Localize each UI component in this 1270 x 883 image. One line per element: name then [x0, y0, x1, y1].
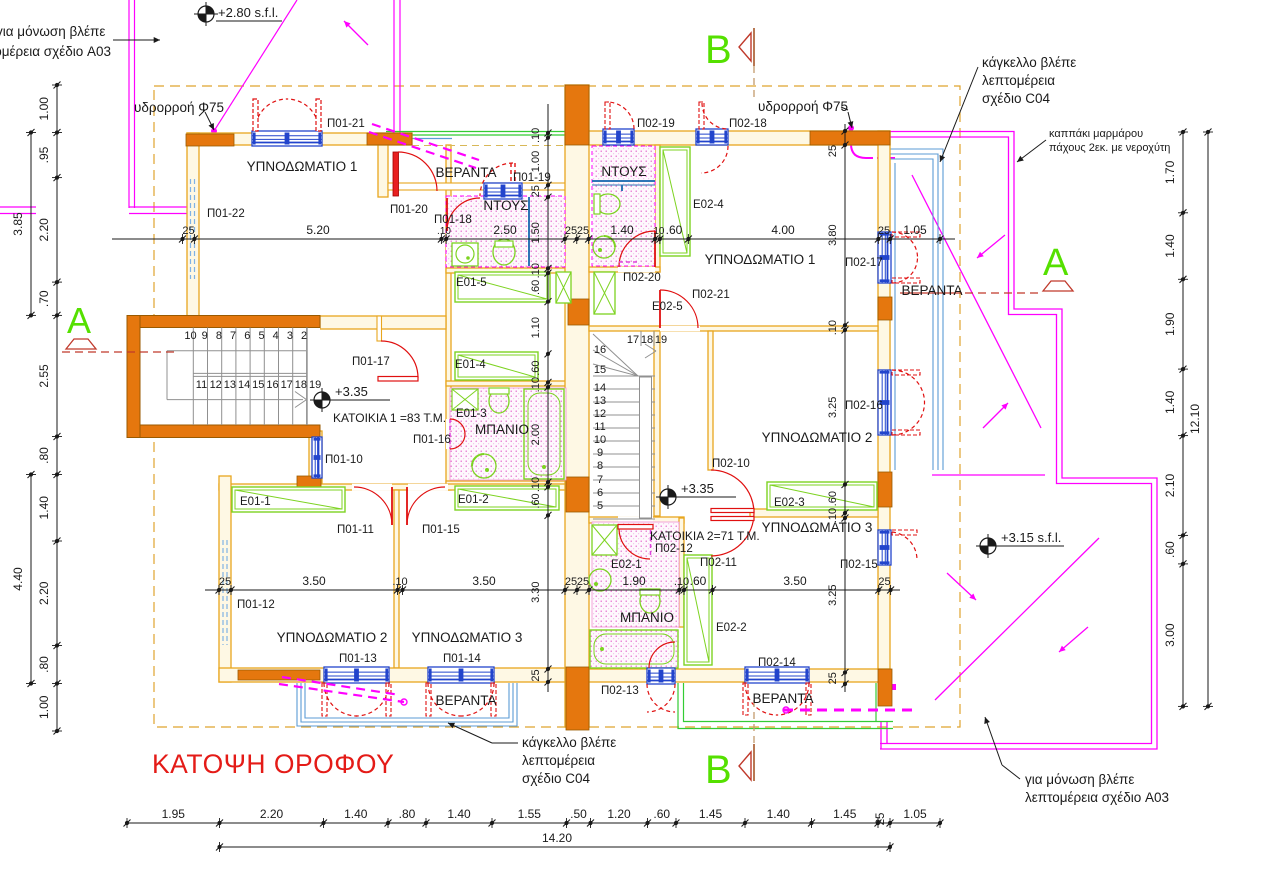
svg-text:16: 16 [266, 379, 278, 391]
svg-text:1.00: 1.00 [530, 151, 542, 172]
svg-text:E02-4: E02-4 [693, 199, 724, 211]
svg-text:+3.15 s.f.l.: +3.15 s.f.l. [1001, 530, 1061, 545]
svg-text:B: B [705, 28, 732, 72]
svg-text:Π01-16: Π01-16 [413, 434, 451, 446]
svg-text:1.40: 1.40 [1163, 234, 1177, 258]
svg-text:Π01-18: Π01-18 [434, 214, 472, 226]
svg-text:5: 5 [258, 330, 264, 342]
svg-text:Π02-13: Π02-13 [601, 685, 639, 697]
svg-text:1.40: 1.40 [767, 807, 791, 821]
svg-text:14: 14 [594, 382, 606, 394]
svg-text:18: 18 [295, 379, 307, 391]
svg-text:9: 9 [202, 330, 208, 342]
svg-text:2.00: 2.00 [530, 424, 542, 445]
svg-text:3.00: 3.00 [1163, 623, 1177, 647]
svg-text:.60: .60 [827, 491, 839, 506]
svg-text:ΜΠΑΝΙΟ: ΜΠΑΝΙΟ [620, 610, 674, 625]
svg-text:E01-5: E01-5 [456, 277, 487, 289]
svg-text:.10: .10 [827, 320, 839, 335]
svg-text:25: 25 [530, 669, 542, 681]
svg-text:ΜΠΑΝΙΟ: ΜΠΑΝΙΟ [475, 422, 529, 437]
svg-text:ΚΑΤΟΨΗ ΟΡΟΦΟΥ: ΚΑΤΟΨΗ ΟΡΟΦΟΥ [152, 749, 394, 779]
svg-text:1.90: 1.90 [1163, 312, 1177, 336]
svg-text:11: 11 [594, 421, 605, 433]
svg-text:ΒΕΡΑΝΤΑ: ΒΕΡΑΝΤΑ [901, 283, 962, 298]
svg-text:Π01-19: Π01-19 [513, 172, 551, 184]
svg-text:Π01-21: Π01-21 [327, 118, 365, 130]
svg-text:.10: .10 [827, 508, 839, 523]
svg-text:Π01-22: Π01-22 [207, 208, 245, 220]
svg-text:.10: .10 [392, 576, 407, 588]
svg-text:ΚΑΤΟΙΚΙΑ 1 =83 Τ.Μ.: ΚΑΤΟΙΚΙΑ 1 =83 Τ.Μ. [333, 411, 446, 425]
svg-text:Π01-14: Π01-14 [443, 653, 481, 665]
svg-text:.80: .80 [399, 807, 416, 821]
svg-text:1.00: 1.00 [37, 695, 51, 719]
svg-text:15: 15 [252, 379, 264, 391]
svg-text:6: 6 [597, 487, 603, 499]
svg-text:.60: .60 [690, 574, 707, 588]
svg-text:12: 12 [594, 408, 606, 420]
svg-text:.60: .60 [653, 807, 670, 821]
svg-text:14: 14 [238, 379, 250, 391]
svg-text:17: 17 [281, 379, 293, 391]
svg-text:.10: .10 [530, 377, 542, 392]
svg-text:+2.80 s.f.l.: +2.80 s.f.l. [218, 5, 278, 20]
svg-text:.60: .60 [1163, 541, 1177, 558]
svg-text:E02-5: E02-5 [652, 301, 683, 313]
svg-text:5.20: 5.20 [306, 223, 330, 237]
svg-text:.95: .95 [37, 146, 51, 163]
svg-text:υδρορροή Φ75: υδρορροή Φ75 [758, 99, 848, 114]
svg-text:3.50: 3.50 [472, 574, 496, 588]
svg-text:.10: .10 [437, 226, 451, 237]
svg-text:ΚΑΤΟΙΚΙΑ 2=71 Τ.Μ.: ΚΑΤΟΙΚΙΑ 2=71 Τ.Μ. [650, 529, 760, 543]
svg-text:1.05: 1.05 [903, 807, 927, 821]
svg-text:9: 9 [597, 447, 603, 459]
svg-text:.70: .70 [37, 290, 51, 307]
svg-text:3.50: 3.50 [302, 574, 326, 588]
svg-text:12: 12 [210, 379, 222, 391]
svg-text:ΝΤΟΥΣ: ΝΤΟΥΣ [601, 164, 646, 179]
svg-text:E02-1: E02-1 [611, 559, 642, 571]
svg-text:1.40: 1.40 [344, 807, 368, 821]
svg-text:2.20: 2.20 [37, 581, 51, 605]
svg-text:3.30: 3.30 [530, 581, 542, 602]
svg-text:1.40: 1.40 [37, 496, 51, 520]
svg-text:5: 5 [597, 500, 603, 512]
svg-text:Π02-21: Π02-21 [692, 289, 730, 301]
svg-text:λεπτομέρεια σχέδιο A03: λεπτομέρεια σχέδιο A03 [1025, 790, 1169, 805]
svg-text:25: 25 [878, 225, 890, 237]
svg-text:10: 10 [184, 330, 196, 342]
svg-text:17: 17 [627, 334, 639, 346]
svg-text:1.40: 1.40 [1163, 390, 1177, 414]
svg-text:E01-1: E01-1 [240, 496, 271, 508]
svg-text:3.85: 3.85 [11, 212, 25, 236]
svg-text:3.80: 3.80 [827, 224, 839, 245]
svg-text:10: 10 [594, 434, 606, 446]
svg-text:16: 16 [594, 344, 606, 356]
svg-text:3.25: 3.25 [827, 584, 839, 605]
svg-text:14.20: 14.20 [542, 831, 572, 845]
svg-text:Π01-12: Π01-12 [237, 599, 275, 611]
svg-text:2.55: 2.55 [37, 364, 51, 388]
svg-text:σχέδιο C04: σχέδιο C04 [982, 91, 1050, 106]
svg-text:για μόνωση βλέπε: για μόνωση βλέπε [0, 24, 105, 39]
svg-text:.10: .10 [530, 263, 542, 278]
svg-text:ΥΠΝΟΔΩΜΑΤΙΟ 1: ΥΠΝΟΔΩΜΑΤΙΟ 1 [247, 159, 358, 174]
svg-text:3: 3 [287, 330, 293, 342]
svg-text:E01-2: E01-2 [458, 494, 489, 506]
svg-text:18: 18 [641, 334, 653, 346]
svg-text:.10: .10 [674, 576, 689, 588]
svg-text:Π02-20: Π02-20 [623, 272, 661, 284]
svg-text:11: 11 [196, 379, 207, 391]
svg-text:ΥΠΝΟΔΩΜΑΤΙΟ 2: ΥΠΝΟΔΩΜΑΤΙΟ 2 [762, 430, 873, 445]
svg-text:B: B [705, 748, 732, 792]
svg-text:λεπτομέρεια: λεπτομέρεια [522, 753, 595, 768]
svg-text:7: 7 [230, 330, 236, 342]
svg-text:ΒΕΡΑΝΤΑ: ΒΕΡΑΝΤΑ [435, 165, 496, 180]
svg-text:.50: .50 [570, 807, 587, 821]
svg-text:2.20: 2.20 [37, 218, 51, 242]
svg-text:19: 19 [655, 334, 667, 346]
svg-text:υδρορροή Φ75: υδρορροή Φ75 [134, 100, 224, 115]
svg-text:ΒΕΡΑΝΤΑ: ΒΕΡΑΝΤΑ [435, 693, 496, 708]
svg-text:3.25: 3.25 [827, 397, 839, 418]
svg-text:25: 25 [827, 672, 839, 684]
svg-text:.10: .10 [530, 128, 542, 143]
svg-text:E01-4: E01-4 [455, 359, 486, 371]
svg-text:Π02-10: Π02-10 [712, 458, 750, 470]
svg-text:25: 25 [577, 225, 589, 237]
svg-text:25: 25 [577, 576, 589, 588]
svg-text:25: 25 [875, 813, 887, 826]
svg-text:13: 13 [594, 395, 606, 407]
svg-text:+3.35: +3.35 [681, 481, 714, 496]
svg-text:E02-2: E02-2 [716, 622, 747, 634]
svg-text:+3.35: +3.35 [335, 384, 368, 399]
svg-text:25: 25 [219, 576, 231, 588]
svg-text:1.50: 1.50 [530, 222, 542, 243]
svg-text:6: 6 [244, 330, 250, 342]
svg-text:25: 25 [565, 576, 577, 588]
svg-text:ΥΠΝΟΔΩΜΑΤΙΟ 3: ΥΠΝΟΔΩΜΑΤΙΟ 3 [762, 520, 873, 535]
svg-text:Π02-18: Π02-18 [729, 118, 767, 130]
svg-text:Π01-20: Π01-20 [390, 204, 428, 216]
svg-text:καππάκι μαρμάρου: καππάκι μαρμάρου [1049, 128, 1143, 140]
svg-text:12.10: 12.10 [1188, 404, 1202, 434]
svg-text:2.20: 2.20 [260, 807, 284, 821]
svg-text:19: 19 [309, 379, 321, 391]
svg-text:1.10: 1.10 [530, 317, 542, 338]
svg-text:ΥΠΝΟΔΩΜΑΤΙΟ 2: ΥΠΝΟΔΩΜΑΤΙΟ 2 [277, 630, 388, 645]
svg-text:λεπτομέρεια σχέδιο A03: λεπτομέρεια σχέδιο A03 [0, 44, 111, 59]
svg-text:κάγκελλο βλέπε: κάγκελλο βλέπε [982, 55, 1076, 70]
svg-text:2.10: 2.10 [1163, 473, 1177, 497]
svg-text:8: 8 [597, 460, 603, 472]
svg-text:7: 7 [597, 474, 603, 486]
svg-text:.80: .80 [37, 656, 51, 673]
svg-text:Π02-19: Π02-19 [637, 118, 675, 130]
svg-text:E01-3: E01-3 [456, 408, 487, 420]
svg-text:ΝΤΟΥΣ: ΝΤΟΥΣ [483, 198, 528, 213]
svg-text:Π01-15: Π01-15 [422, 524, 460, 536]
svg-text:.10: .10 [651, 226, 665, 237]
svg-text:1.90: 1.90 [622, 574, 646, 588]
svg-text:15: 15 [594, 364, 606, 376]
svg-text:πάχους 2εκ. με νεροχύτη: πάχους 2εκ. με νεροχύτη [1049, 142, 1170, 154]
svg-text:2: 2 [301, 330, 307, 342]
svg-text:1.05: 1.05 [903, 223, 927, 237]
svg-text:ΥΠΝΟΔΩΜΑΤΙΟ 3: ΥΠΝΟΔΩΜΑΤΙΟ 3 [412, 630, 523, 645]
svg-text:8: 8 [216, 330, 222, 342]
svg-text:25: 25 [827, 145, 839, 157]
svg-text:4.40: 4.40 [11, 567, 25, 591]
svg-text:Π02-16: Π02-16 [845, 400, 883, 412]
svg-text:2.50: 2.50 [493, 223, 517, 237]
svg-text:E02-3: E02-3 [774, 497, 805, 509]
svg-text:4.00: 4.00 [771, 223, 795, 237]
svg-text:ΒΕΡΑΝΤΑ: ΒΕΡΑΝΤΑ [752, 691, 813, 706]
svg-text:1.40: 1.40 [447, 807, 471, 821]
svg-text:λεπτομέρεια: λεπτομέρεια [982, 73, 1055, 88]
svg-text:για μόνωση βλέπε: για μόνωση βλέπε [1025, 772, 1134, 787]
svg-text:Π02-15: Π02-15 [840, 559, 878, 571]
svg-text:.60: .60 [530, 493, 542, 508]
svg-text:1.70: 1.70 [1163, 160, 1177, 184]
svg-text:13: 13 [224, 379, 236, 391]
svg-text:1.45: 1.45 [699, 807, 723, 821]
svg-text:Π01-13: Π01-13 [339, 653, 377, 665]
svg-text:1.40: 1.40 [610, 223, 634, 237]
svg-text:κάγκελλο βλέπε: κάγκελλο βλέπε [522, 735, 616, 750]
svg-text:1.20: 1.20 [607, 807, 631, 821]
svg-text:1.00: 1.00 [37, 97, 51, 121]
svg-text:1.45: 1.45 [833, 807, 857, 821]
svg-text:ΥΠΝΟΔΩΜΑΤΙΟ 1: ΥΠΝΟΔΩΜΑΤΙΟ 1 [705, 252, 816, 267]
svg-text:.60: .60 [530, 360, 542, 375]
svg-text:25: 25 [182, 225, 194, 237]
svg-text:Π02-12: Π02-12 [655, 543, 693, 555]
svg-text:25: 25 [878, 576, 890, 588]
svg-text:σχέδιο C04: σχέδιο C04 [522, 771, 590, 786]
svg-text:3.50: 3.50 [783, 574, 807, 588]
svg-text:.10: .10 [530, 477, 542, 492]
svg-text:Π02-11: Π02-11 [700, 557, 737, 569]
svg-text:.80: .80 [37, 447, 51, 464]
svg-text:A: A [1043, 242, 1069, 284]
svg-text:1.95: 1.95 [162, 807, 186, 821]
svg-text:25: 25 [530, 185, 542, 197]
svg-text:Π02-17: Π02-17 [845, 257, 883, 269]
svg-text:Π02-14: Π02-14 [758, 657, 796, 669]
svg-text:.60: .60 [666, 223, 683, 237]
svg-text:Π01-17: Π01-17 [352, 356, 390, 368]
svg-text:.60: .60 [530, 280, 542, 295]
svg-text:A: A [67, 300, 91, 341]
svg-text:1.55: 1.55 [518, 807, 542, 821]
svg-text:4: 4 [273, 330, 279, 342]
svg-text:Π01-10: Π01-10 [325, 454, 363, 466]
svg-text:25: 25 [565, 225, 577, 237]
svg-text:Π01-11: Π01-11 [337, 524, 374, 536]
